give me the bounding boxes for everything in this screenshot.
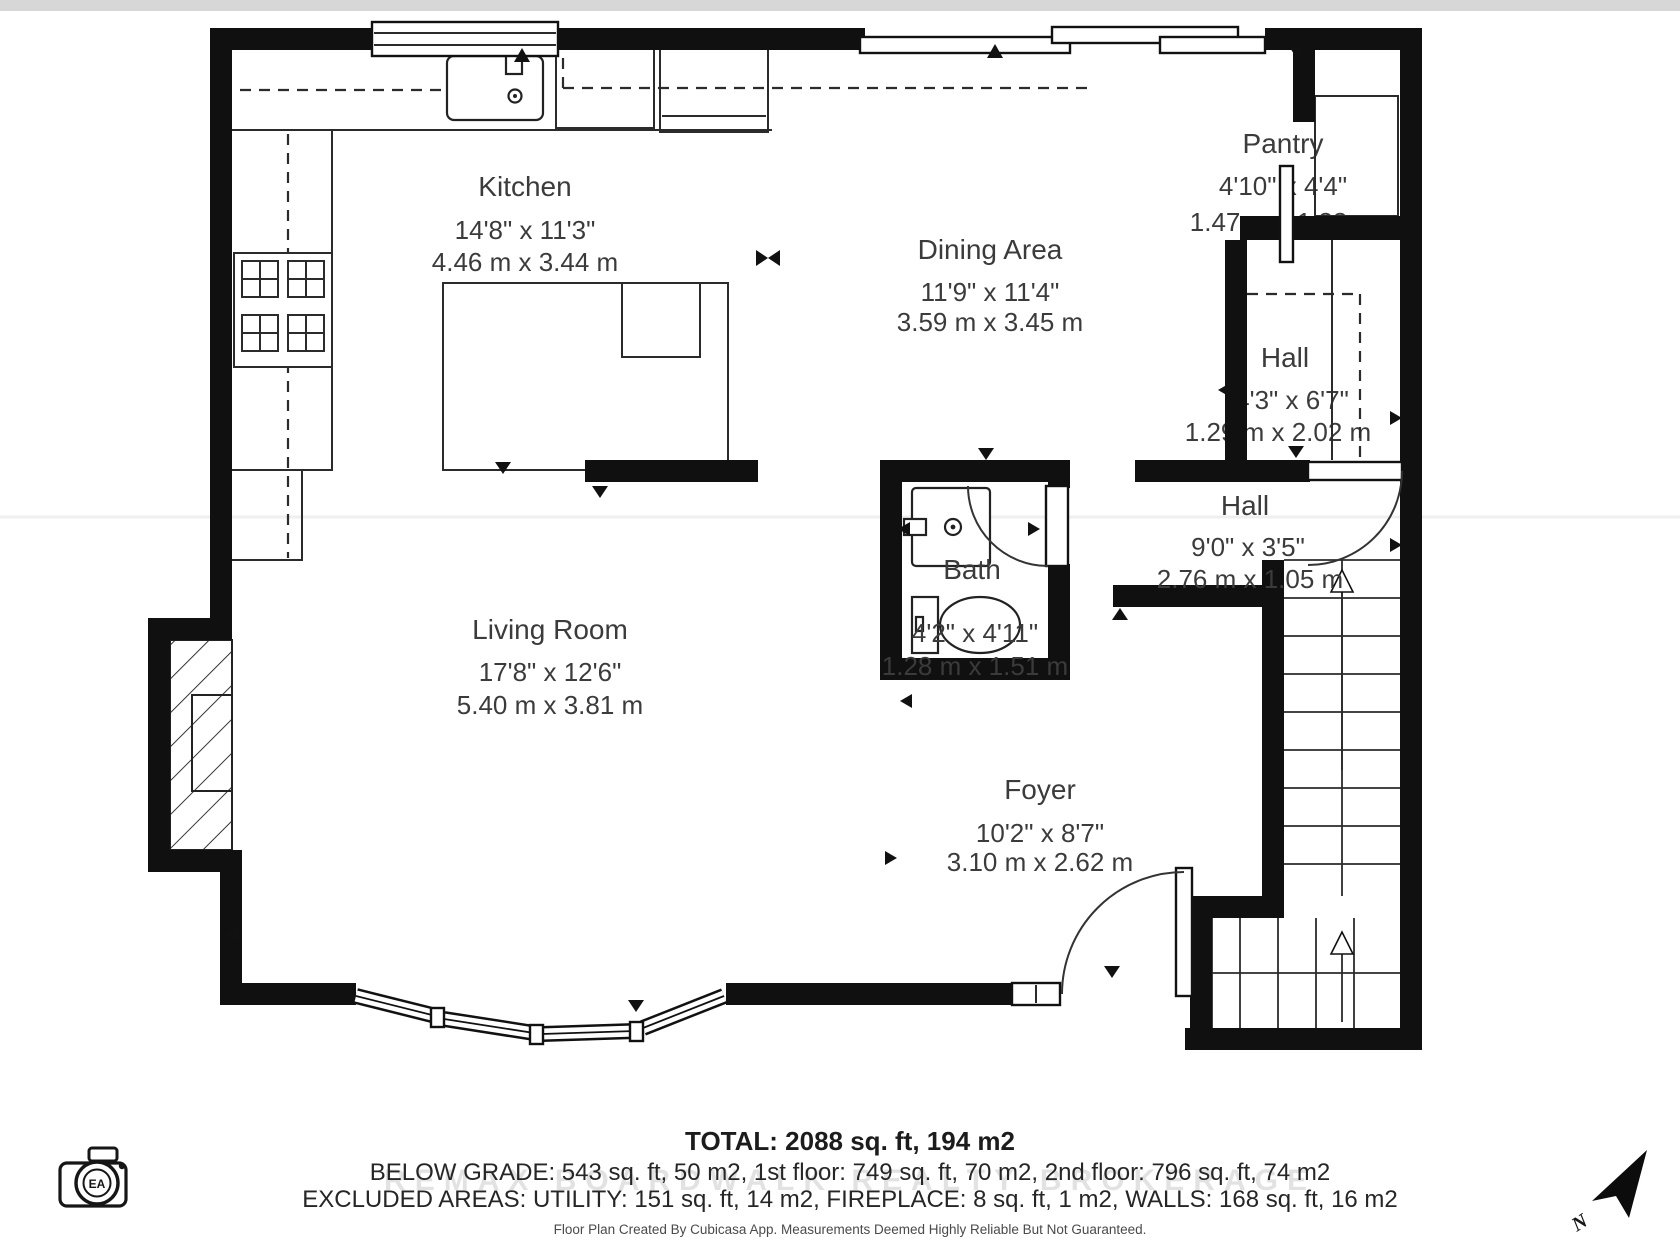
stairs (1212, 560, 1400, 1028)
room-dimensions-imperial: 9'0" x 3'5" (1191, 532, 1305, 562)
room-dimensions-metric: 1.29 m x 2.02 m (1185, 417, 1371, 447)
room-label-kitchen: Kitchen 14'8" x 11'3" 4.46 m x 3.44 m (432, 171, 618, 277)
room-dimensions-imperial: 4'2" x 4'11" (912, 618, 1038, 648)
fridge-icon (660, 36, 768, 132)
summary-excluded: EXCLUDED AREAS: UTILITY: 151 sq. ft, 14 … (302, 1186, 1398, 1213)
room-label-living-room: Living Room 17'8" x 12'6" 5.40 m x 3.81 … (457, 614, 643, 720)
summary-breakdown: BELOW GRADE: 543 sq. ft, 50 m2, 1st floo… (370, 1159, 1330, 1186)
stove-icon (234, 253, 332, 367)
summary-total: TOTAL: 2088 sq. ft, 194 m2 (685, 1126, 1015, 1156)
room-dimensions-metric: 3.10 m x 2.62 m (947, 847, 1133, 877)
room-dimensions-imperial: 17'8" x 12'6" (479, 657, 622, 687)
summary-disclaimer: Floor Plan Created By Cubicasa App. Meas… (554, 1222, 1147, 1237)
room-name: Dining Area (918, 234, 1063, 265)
room-dimensions-imperial: 11'9" x 11'4" (921, 277, 1060, 307)
camera-logo-icon: EA (60, 1148, 126, 1206)
room-name: Hall (1261, 342, 1309, 373)
kitchen-window (372, 22, 558, 56)
room-dimensions-metric: 4.46 m x 3.44 m (432, 247, 618, 277)
logo-initials: EA (89, 1177, 106, 1191)
room-name: Living Room (472, 614, 628, 645)
room-dimensions-metric: 1.28 m x 1.51 m (882, 651, 1068, 681)
top-strip (0, 0, 1680, 11)
area-summary: TOTAL: 2088 sq. ft, 194 m2 BELOW GRADE: … (302, 1126, 1398, 1237)
room-dimensions-imperial: 10'2" x 8'7" (976, 818, 1104, 848)
room-name: Pantry (1243, 128, 1324, 159)
pantry-door (1280, 166, 1293, 262)
room-dimensions-metric: 5.40 m x 3.81 m (457, 690, 643, 720)
room-name: Kitchen (478, 171, 571, 202)
dining-windows (860, 27, 1265, 53)
room-dimensions-imperial: 14'8" x 11'3" (455, 215, 596, 245)
north-arrow-icon: N (1567, 1150, 1647, 1237)
entry-sidelight-window (1012, 983, 1060, 1005)
room-name: Bath (943, 554, 1001, 585)
north-label: N (1567, 1209, 1593, 1237)
entry-door (1062, 868, 1192, 996)
room-label-foyer: Foyer 10'2" x 8'7" 3.10 m x 2.62 m (947, 774, 1133, 877)
room-dimensions-metric: 3.59 m x 3.45 m (897, 307, 1083, 337)
room-dimensions-metric: 2.76 m x 1.05 m (1157, 564, 1343, 594)
hall-door (1308, 462, 1402, 565)
bay-window (356, 996, 724, 1044)
room-name: Foyer (1004, 774, 1076, 805)
kitchen-island (443, 283, 728, 470)
fireplace-icon (170, 640, 232, 850)
room-name: Hall (1221, 490, 1269, 521)
room-label-hall-upper: Hall 4'3" x 6'7" 1.29 m x 2.02 m (1185, 342, 1371, 447)
room-label-hall-lower: Hall 9'0" x 3'5" 2.76 m x 1.05 m (1157, 490, 1343, 594)
room-label-dining: Dining Area 11'9" x 11'4" 3.59 m x 3.45 … (897, 234, 1083, 337)
floor-plan-page: Pantry 4'10" x 4'4" 1.47 m x 1.33 m Hall… (0, 0, 1680, 1260)
room-label-bath: Bath 4'2" x 4'11" 1.28 m x 1.51 m (882, 554, 1068, 681)
floor-plan-drawing: Pantry 4'10" x 4'4" 1.47 m x 1.33 m Hall… (0, 0, 1680, 1260)
